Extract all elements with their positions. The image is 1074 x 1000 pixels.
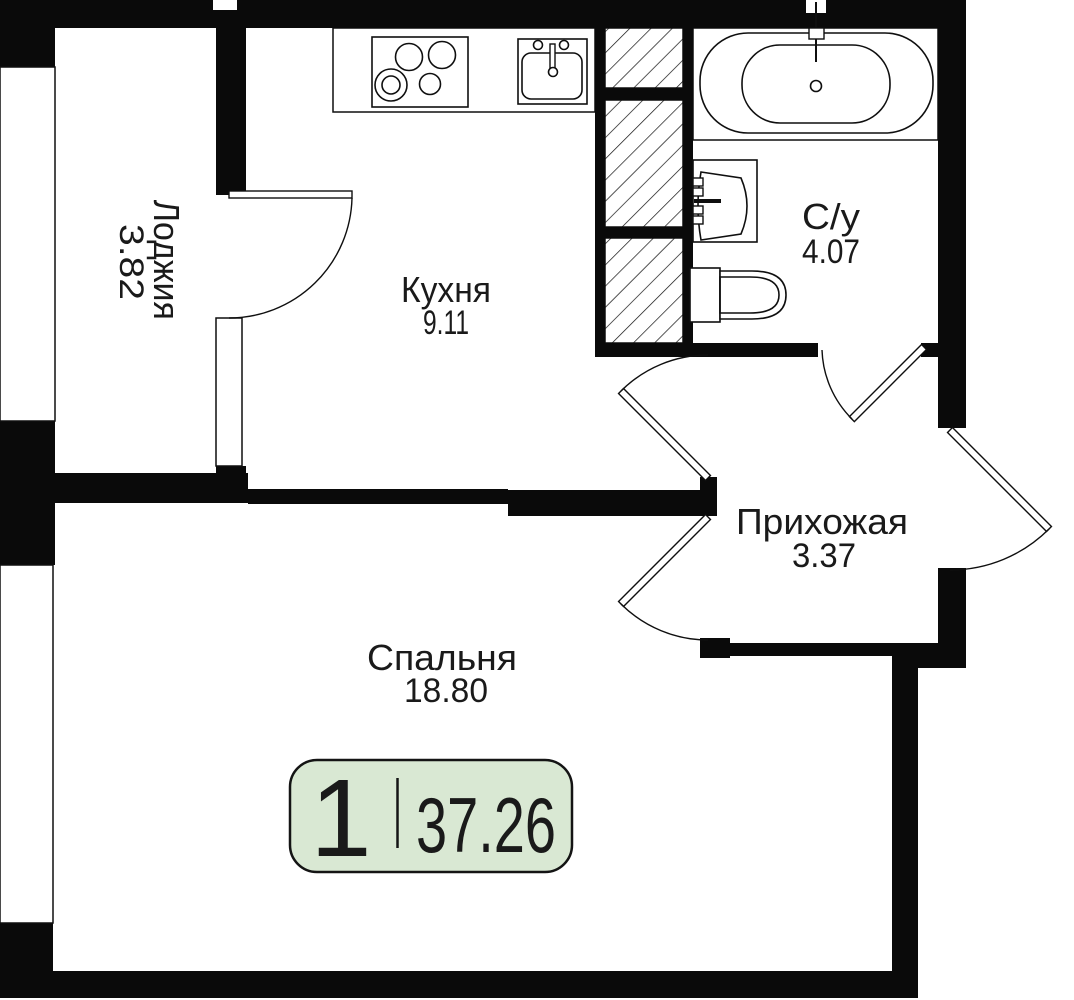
stove-icon — [372, 37, 468, 107]
floor-plan: Лоджия 3.82 Кухня 9.11 С/у 4.07 Прихожая… — [0, 0, 1074, 1000]
bathroom-name: С/у — [802, 196, 860, 237]
badge-total-area: 37.26 — [416, 781, 556, 869]
kitchen-sink-icon — [518, 39, 587, 104]
hallway-name: Прихожая — [736, 501, 908, 542]
toilet-icon — [690, 268, 786, 322]
washbasin-icon — [693, 160, 757, 242]
loggia-name: Лоджия — [146, 200, 187, 320]
loggia-area: 3.82 — [112, 224, 150, 300]
bathroom-area: 4.07 — [802, 233, 860, 271]
bedroom-window — [0, 565, 53, 923]
kitchen-area: 9.11 — [423, 304, 469, 342]
hallway-area: 3.37 — [792, 537, 856, 575]
bedroom-area: 18.80 — [404, 672, 488, 710]
area-badge: 1 37.26 — [290, 757, 572, 880]
badge-rooms-count: 1 — [310, 757, 371, 880]
balcony-block-window — [216, 318, 242, 466]
ventilation-shaft-icon — [605, 28, 683, 343]
loggia-window — [0, 67, 55, 421]
wall-joint-notch — [213, 0, 237, 10]
